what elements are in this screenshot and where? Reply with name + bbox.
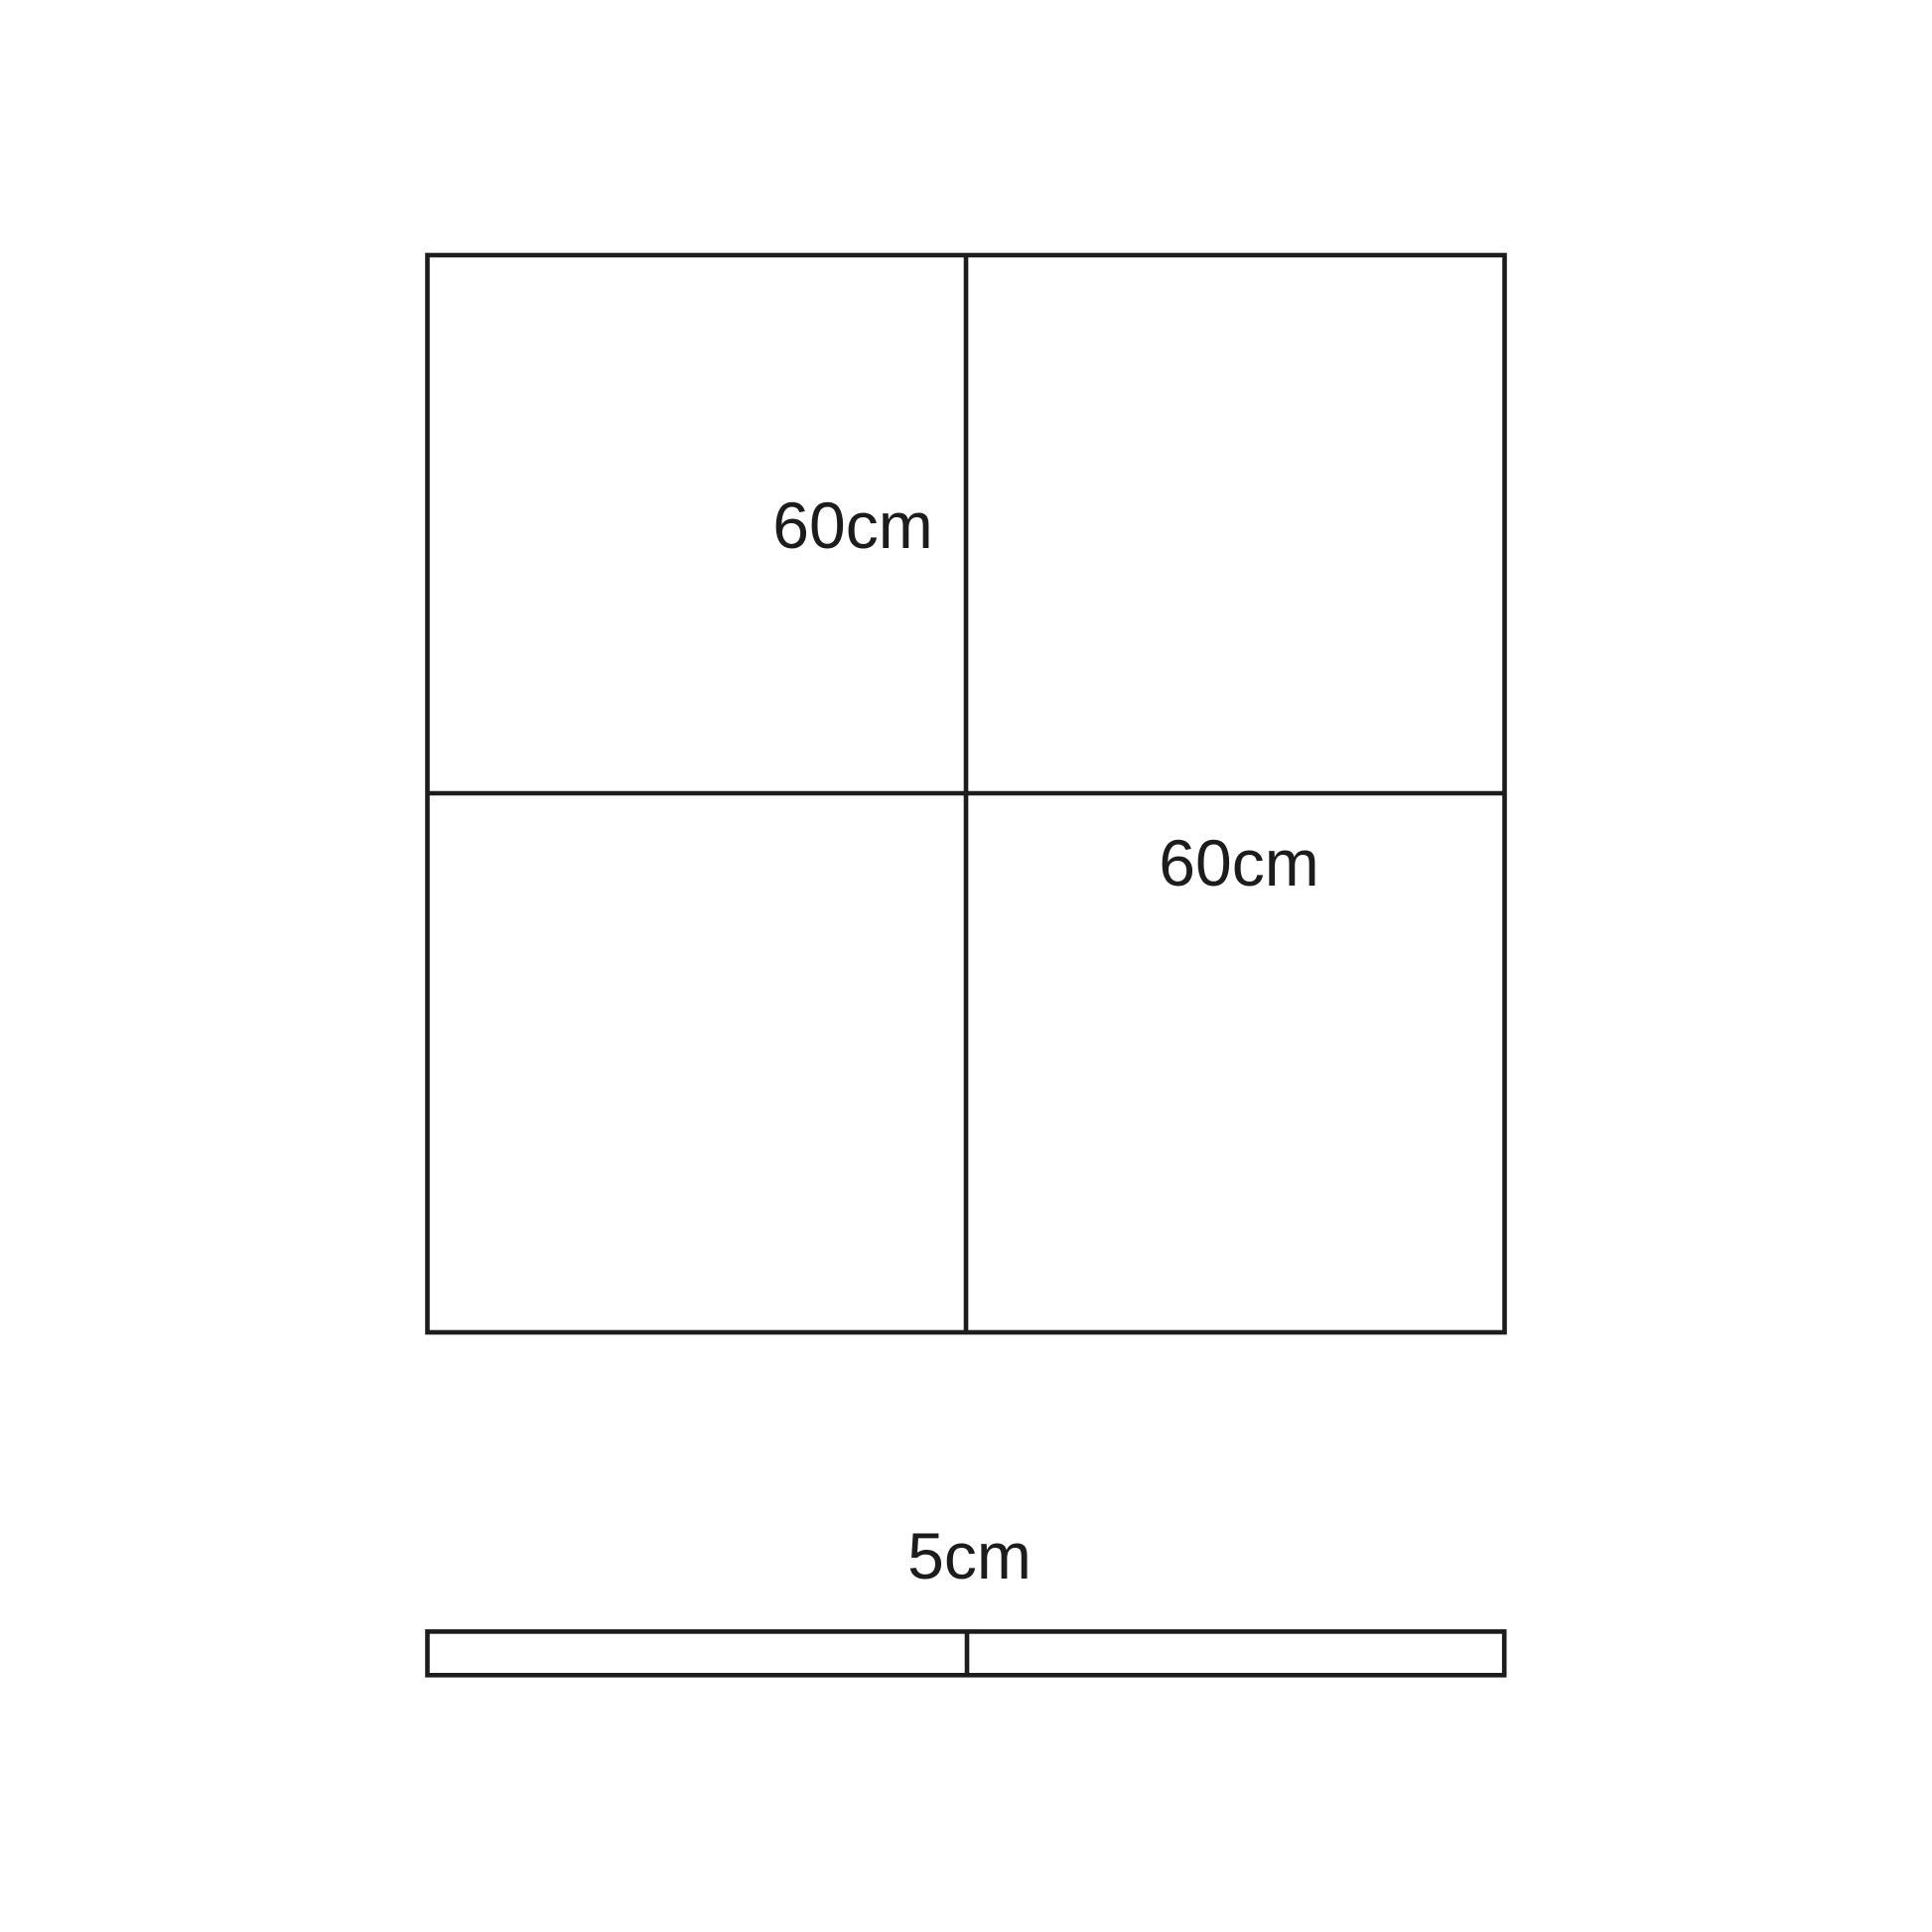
svg-text:60cm: 60cm — [1159, 826, 1318, 899]
svg-text:60cm: 60cm — [772, 488, 932, 562]
svg-text:5cm: 5cm — [907, 1519, 1032, 1592]
